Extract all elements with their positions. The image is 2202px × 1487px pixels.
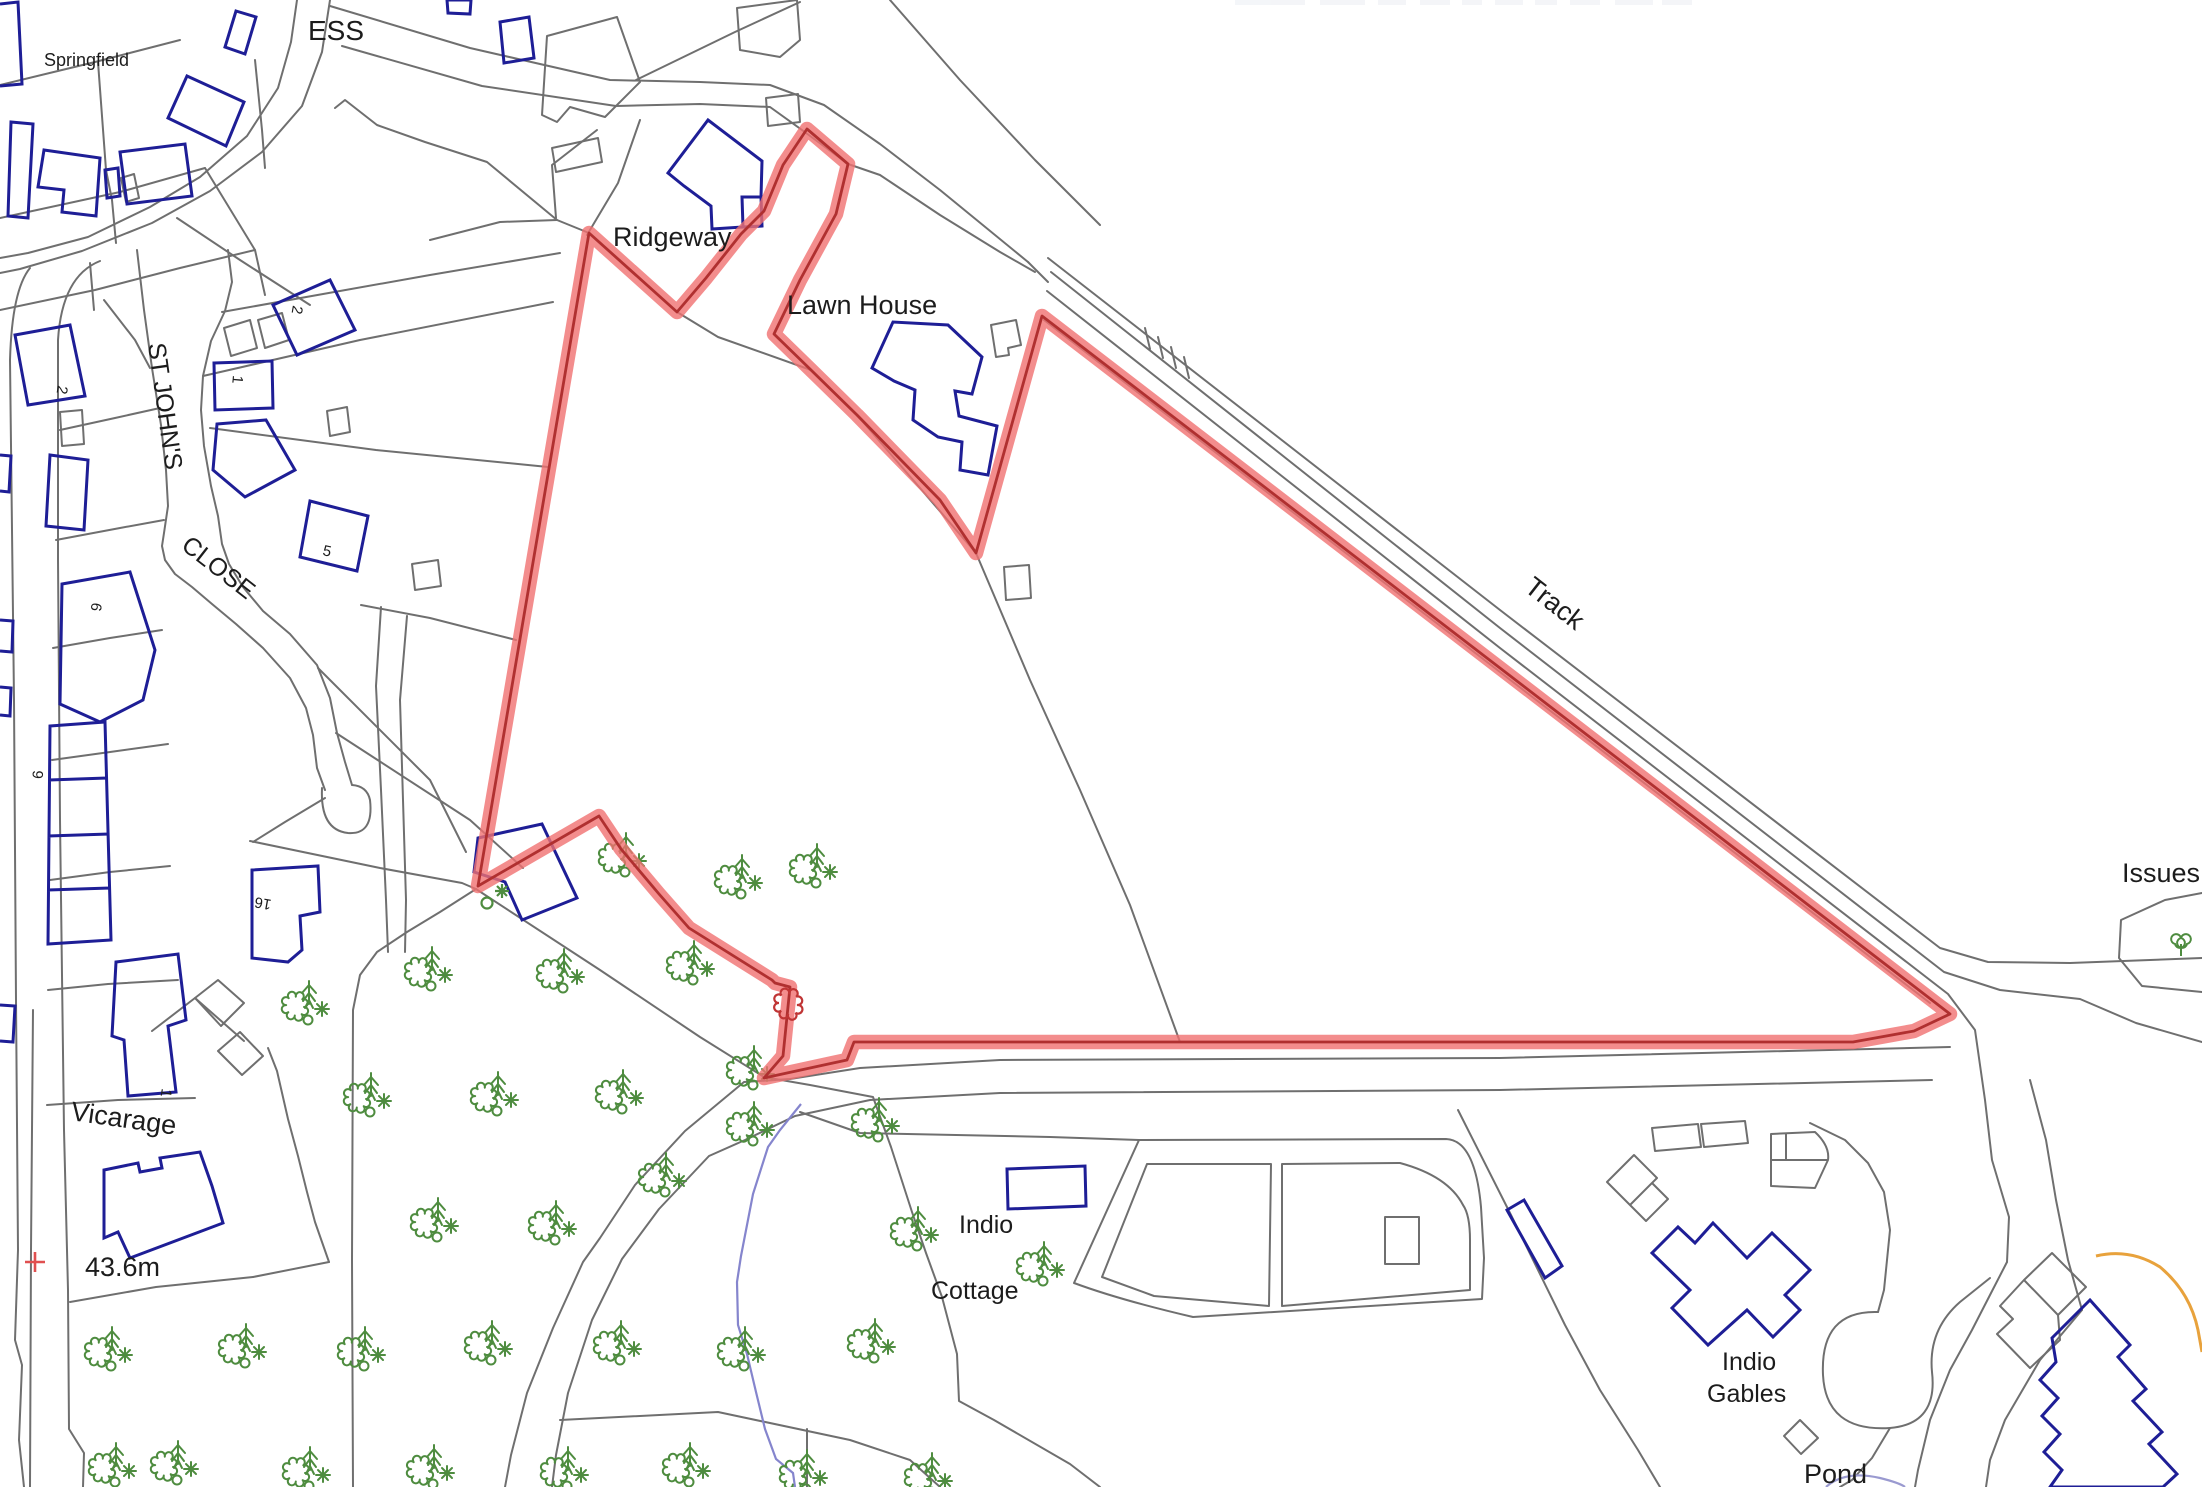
svg-text:Cottage: Cottage (931, 1277, 1019, 1305)
svg-text:Lawn House: Lawn House (787, 290, 937, 320)
svg-text:9: 9 (28, 770, 46, 780)
svg-text:Gables: Gables (1707, 1380, 1786, 1408)
svg-text:Pond: Pond (1804, 1459, 1867, 1487)
svg-text:Indio: Indio (1722, 1348, 1776, 1376)
svg-text:Springfield: Springfield (44, 50, 129, 70)
svg-text:ESS: ESS (308, 15, 364, 46)
svg-text:Indio: Indio (959, 1211, 1013, 1239)
svg-text:Ridgeway: Ridgeway (613, 222, 732, 252)
svg-text:16: 16 (253, 893, 272, 913)
svg-text:1: 1 (228, 375, 246, 385)
svg-text:43.6m: 43.6m (85, 1252, 160, 1282)
svg-text:Issues: Issues (2122, 858, 2200, 888)
